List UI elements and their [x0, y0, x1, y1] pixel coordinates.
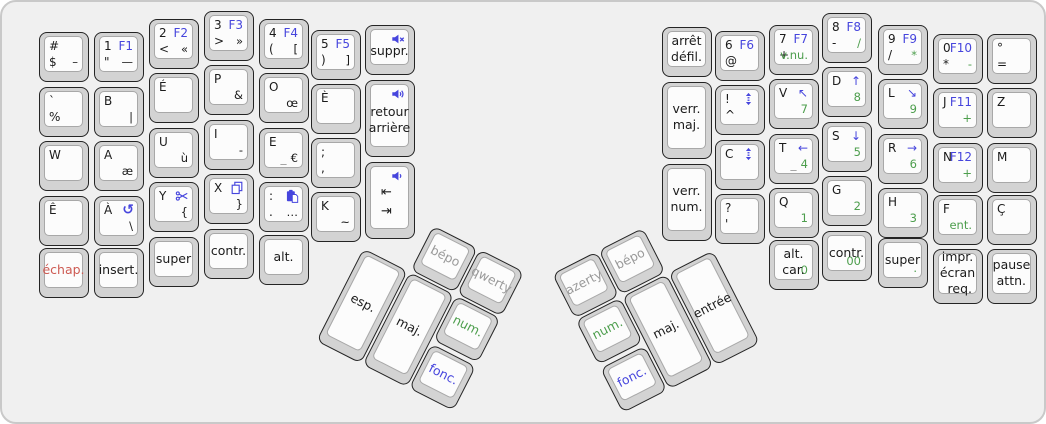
keycap-top: bépo [605, 234, 656, 284]
key-e-grave[interactable]: È [311, 84, 361, 134]
key-label: fonc. [609, 355, 655, 399]
key-legend: 4 [269, 27, 277, 39]
key-legend: ~ [340, 217, 350, 229]
key-print-screen[interactable]: impr.écranreq. [933, 249, 983, 304]
key-label: impr.écranreq. [940, 255, 975, 292]
key-legend: ↖ [798, 87, 808, 99]
key-legend: 5 [854, 147, 861, 159]
key-label: échap. [46, 254, 81, 286]
key-super-right[interactable]: .super [878, 238, 928, 288]
key-i[interactable]: I- [204, 120, 254, 170]
keycap-top: P& [209, 69, 248, 105]
keycap-top: I- [209, 124, 248, 160]
key-colon[interactable]: :.… [259, 182, 309, 232]
key-legend: + [962, 168, 972, 180]
key-legend: * [911, 50, 917, 62]
key-legend: Q [779, 196, 788, 208]
copy-icon [230, 181, 244, 195]
key-legend: J [943, 96, 947, 108]
key-label: bépo [422, 234, 468, 278]
key-legend: Ê [49, 204, 57, 216]
key-legend: 5 [321, 38, 329, 50]
key-legend: 2 [159, 27, 167, 39]
key-legend: ^ [725, 109, 735, 121]
key-legend: I [214, 128, 218, 140]
keycap-top: 7F7+v.nu. [774, 29, 813, 65]
key-e-circumflex[interactable]: Ê [39, 196, 89, 246]
keycap-top: super [154, 241, 193, 277]
key-legend: $ [49, 56, 57, 68]
key-legend: - [968, 59, 972, 71]
keycap-top: G2 [827, 180, 866, 216]
key-legend: F5 [335, 38, 350, 50]
scroll-icon [742, 147, 755, 161]
keycap-top: verr.maj. [667, 86, 706, 149]
key-legend: > [214, 35, 224, 47]
key-legend: S [832, 130, 840, 142]
key-label: alt.car. [776, 246, 811, 278]
key-legend: P [214, 73, 221, 85]
key-c[interactable]: C [715, 140, 765, 190]
keycap-top: V↖7 [774, 83, 813, 119]
key-escape[interactable]: échap. [39, 248, 89, 298]
key-legend: ↑ [851, 75, 861, 87]
keycap-top: K~ [316, 196, 355, 232]
key-legend: D [832, 75, 841, 87]
key-k[interactable]: K~ [311, 192, 361, 242]
key-legend: " [104, 56, 110, 68]
keycap-top: W [44, 145, 83, 181]
key-label: arrêtdéfil. [669, 33, 704, 65]
scissors-icon [175, 189, 189, 203]
key-percent[interactable]: `% [39, 87, 89, 137]
key-legend: L [888, 87, 895, 99]
key-legend: ↘ [907, 87, 917, 99]
keycap-top: !^ [720, 89, 759, 125]
key-legend: T [779, 142, 786, 154]
key-legend: æ [122, 166, 133, 178]
paste-icon [285, 189, 299, 203]
key-j-f11[interactable]: JF11+ [933, 88, 983, 138]
key-super-left[interactable]: super [149, 237, 199, 287]
key-label: contr. [211, 235, 246, 267]
key-legend: ; [321, 146, 325, 158]
key-label: bépo [607, 237, 653, 281]
keycap-top: 4F4([ [264, 23, 303, 59]
key-legend: H [888, 196, 897, 208]
key-legend: ! [725, 93, 730, 105]
scroll-icon [742, 92, 755, 106]
keycap-top: Ç [992, 199, 1031, 235]
keycap-top: .super [883, 242, 922, 278]
key-e[interactable]: E_€ [259, 128, 309, 178]
key-label: fonc. [421, 352, 467, 396]
key-c-cedilla[interactable]: Ç [987, 195, 1037, 245]
keycap-top: Z [992, 92, 1031, 128]
key-label: super [156, 243, 191, 275]
key-legend: * [943, 58, 949, 70]
key-label: suppr. [372, 31, 407, 63]
key-t[interactable]: T←_4 [769, 134, 819, 184]
key-legend: + [962, 113, 972, 125]
keycap-top: ⇤⇥ [370, 166, 409, 229]
key-legend: C [725, 148, 733, 160]
key-9-f9[interactable]: 9F9/* [878, 25, 928, 75]
key-dollar[interactable]: #$– [39, 32, 89, 82]
key-legend: , [321, 162, 325, 174]
keycap-top: fonc. [418, 349, 469, 399]
key-label: num. [585, 307, 631, 351]
key-legend: [ [294, 44, 299, 56]
key-legend: # [49, 40, 59, 52]
key-legend: ← [798, 142, 808, 154]
undo-icon: ↺ [122, 203, 134, 217]
key-v[interactable]: V↖7 [769, 79, 819, 129]
key-legend: } [236, 199, 243, 211]
key-legend: F8 [846, 21, 861, 33]
key-legend: » [236, 36, 243, 48]
key-caps-lock[interactable]: verr.maj. [662, 82, 712, 159]
key-label: alt. [266, 241, 301, 273]
key-a[interactable]: Aæ [94, 141, 144, 191]
key-w[interactable]: W [39, 141, 89, 191]
keycap-top: C [720, 144, 759, 180]
key-x[interactable]: X} [204, 174, 254, 224]
key-b[interactable]: B| [94, 87, 144, 137]
key-legend: & [234, 90, 243, 102]
key-legend: F [943, 203, 950, 215]
keycap-top: 5F5)] [316, 34, 355, 70]
key-legend: ` [49, 95, 55, 107]
key-l[interactable]: L↘9 [878, 79, 928, 129]
key-3-f3[interactable]: 3F3>» [204, 11, 254, 61]
keycap-top: 0F10*- [938, 38, 977, 74]
key-legend: K [321, 200, 329, 212]
keycap-top: Q1 [774, 192, 813, 228]
keycap-top: `% [44, 91, 83, 127]
key-legend: 3 [910, 213, 917, 225]
key-legend: O [269, 81, 278, 93]
key-altgr[interactable]: 0alt.car. [769, 240, 819, 290]
keycap-top: arrêtdéfil. [667, 31, 706, 67]
key-legend: 1 [801, 213, 808, 225]
key-alt[interactable]: alt. [259, 235, 309, 285]
key-legend: È [321, 92, 329, 104]
key-legend: À [104, 204, 112, 216]
key-legend: U [159, 136, 168, 148]
key-y[interactable]: Y{ [149, 182, 199, 232]
key-legend: - [832, 37, 836, 49]
key-num-lock[interactable]: verr.num. [662, 164, 712, 241]
key-7-f7[interactable]: 7F7+v.nu. [769, 25, 819, 75]
key-legend: F2 [173, 27, 188, 39]
key-h[interactable]: H3 [878, 188, 928, 238]
key-legend: F1 [118, 40, 133, 52]
key-label: azerty [561, 260, 607, 304]
key-legend: - [239, 145, 243, 157]
key-legend: F12 [950, 151, 972, 163]
key-legend: ent. [949, 220, 972, 232]
key-0-f10[interactable]: 0F10*- [933, 34, 983, 84]
key-control-left[interactable]: contr. [204, 229, 254, 279]
key-label: verr.num. [669, 170, 704, 229]
key-exclamation[interactable]: !^ [715, 85, 765, 135]
key-label: num. [445, 304, 491, 348]
key-legend: É [159, 81, 167, 93]
key-legend: E [269, 136, 277, 148]
key-1-f1[interactable]: 1F1"— [94, 32, 144, 82]
key-legend: → [907, 142, 917, 154]
key-q[interactable]: Q1 [769, 188, 819, 238]
key-legend: € [291, 153, 298, 165]
keycap-top: H3 [883, 192, 922, 228]
key-label: ⇤⇥ [372, 168, 407, 227]
key-control-right[interactable]: 00contr. [822, 231, 872, 281]
keycap-top: contr. [209, 233, 248, 269]
keycap-top: Y{ [154, 186, 193, 222]
key-legend: v.nu. [780, 50, 808, 62]
key-legend: F7 [793, 33, 808, 45]
key-legend: « [181, 44, 188, 56]
keycap-top: pauseattn. [992, 253, 1031, 294]
keycap-top: verr.num. [667, 168, 706, 231]
key-legend: : [269, 190, 273, 202]
key-legend: – [72, 57, 78, 69]
keycap-top: °= [992, 38, 1031, 74]
key-legend: { [181, 207, 188, 219]
keycap-top: S↓5 [827, 126, 866, 162]
key-legend: 6 [725, 39, 733, 51]
key-legend: X [214, 182, 222, 194]
keycap-top: 3F3>» [209, 15, 248, 51]
key-label: verr.maj. [669, 88, 704, 147]
keycap-top: ;, [316, 142, 355, 178]
key-legend: B [104, 95, 112, 107]
key-legend: Z [997, 96, 1005, 108]
key-legend: M [997, 151, 1007, 163]
keycap-top: :.… [264, 186, 303, 222]
key-semicolon[interactable]: ;, [311, 138, 361, 188]
key-scroll-lock[interactable]: arrêtdéfil. [662, 27, 712, 77]
keycap-top: Uù [154, 132, 193, 168]
key-legend: 2 [854, 201, 861, 213]
key-legend: 9 [888, 33, 896, 45]
key-legend: 4 [801, 159, 808, 171]
key-legend: ] [346, 55, 351, 67]
key-legend: W [49, 149, 61, 161]
key-5-f5[interactable]: 5F5)] [311, 30, 361, 80]
key-8-f8[interactable]: 8F8-/ [822, 13, 872, 63]
keycap-top: 8F8-/ [827, 17, 866, 53]
keycap-top: suppr. [370, 29, 409, 65]
key-pause[interactable]: pauseattn. [987, 249, 1037, 304]
key-legend: ' [725, 218, 728, 230]
key-4-f4[interactable]: 4F4([ [259, 19, 309, 69]
key-legend: _ [791, 158, 797, 170]
key-question[interactable]: ?' [715, 194, 765, 244]
key-legend: @ [725, 55, 737, 67]
key-legend: / [857, 38, 861, 50]
keycap-top: 6F6@ [720, 35, 759, 71]
keycap-top: NF12+ [938, 147, 977, 183]
keycap-top: B| [99, 91, 138, 127]
key-legend: = [997, 58, 1007, 70]
key-legend: ) [321, 54, 326, 66]
key-label: contr. [829, 237, 864, 269]
keycap-top: impr.écranreq. [938, 253, 977, 294]
key-delete[interactable]: suppr. [365, 25, 415, 75]
keycap-top: À↺\ [99, 200, 138, 236]
keycap-top: JF11+ [938, 92, 977, 128]
keycap-top: M [992, 147, 1031, 183]
key-legend: F10 [950, 42, 972, 54]
keycap-top: 1F1"— [99, 36, 138, 72]
key-n-f12[interactable]: NF12+ [933, 143, 983, 193]
key-legend: | [129, 112, 133, 124]
key-legend: R [888, 142, 896, 154]
keycap-top: bépo [420, 231, 471, 281]
key-legend: F3 [228, 19, 243, 31]
key-s[interactable]: S↓5 [822, 122, 872, 172]
keycap-top: échap. [44, 252, 83, 288]
key-2-f2[interactable]: 2F2<« [149, 19, 199, 69]
key-legend: % [49, 111, 60, 123]
key-r[interactable]: R→6 [878, 134, 928, 184]
keycap-top: Fent. [938, 199, 977, 235]
key-legend: 8 [854, 92, 861, 104]
keycap-top: #$– [44, 36, 83, 72]
key-g[interactable]: G2 [822, 176, 872, 226]
key-legend: œ [286, 98, 298, 110]
keycap-top: D↑8 [827, 71, 866, 107]
key-legend: 6 [910, 159, 917, 171]
keycap-top: È [316, 88, 355, 124]
key-legend: F9 [902, 33, 917, 45]
keycap-top: fonc. [606, 352, 657, 402]
keyboard-layout: #$–`%WÊéchap.1F1"—B|AæÀ↺\insert.2F2<«ÉUù… [0, 0, 1046, 424]
key-legend: ? [725, 202, 731, 214]
key-legend: Y [159, 190, 166, 202]
key-label: insert. [101, 254, 136, 286]
keycap-top: ?' [720, 198, 759, 234]
key-legend: — [122, 57, 134, 69]
key-insert[interactable]: insert. [94, 248, 144, 298]
key-label: pauseattn. [994, 255, 1029, 292]
key-u[interactable]: Uù [149, 128, 199, 178]
key-label: retourarrière [372, 86, 407, 145]
keycap-top: T←_4 [774, 138, 813, 174]
key-tab[interactable]: ⇤⇥ [365, 162, 415, 239]
key-legend: 1 [104, 40, 112, 52]
key-label: qwerty [469, 258, 515, 302]
key-legend: G [832, 184, 841, 196]
keycap-top: Aæ [99, 145, 138, 181]
keycap-top: alt. [264, 239, 303, 275]
keycap-top: R→6 [883, 138, 922, 174]
key-legend: . [269, 206, 273, 218]
key-degree[interactable]: °= [987, 34, 1037, 84]
keycap-top: qwerty [466, 255, 517, 305]
keycap-top: num. [582, 304, 633, 354]
key-z[interactable]: Z [987, 88, 1037, 138]
key-p[interactable]: P& [204, 65, 254, 115]
key-legend: ° [997, 42, 1003, 54]
keycap-top: 0alt.car. [774, 244, 813, 280]
key-legend: ( [269, 43, 274, 55]
keycap-top: 00contr. [827, 235, 866, 271]
key-legend: \ [129, 221, 133, 233]
key-backspace[interactable]: retourarrière [365, 80, 415, 157]
key-legend: / [888, 49, 892, 61]
key-d[interactable]: D↑8 [822, 67, 872, 117]
keycap-top: É [154, 77, 193, 113]
keycap-top: Oœ [264, 77, 303, 113]
key-legend: F11 [950, 96, 972, 108]
keycap-top: insert. [99, 252, 138, 288]
keycap-top: 9F9/* [883, 29, 922, 65]
key-f[interactable]: Fent. [933, 195, 983, 245]
key-legend: 8 [832, 21, 840, 33]
key-6-f6[interactable]: 6F6@ [715, 31, 765, 81]
key-label: super [885, 244, 920, 276]
key-legend: ù [181, 153, 188, 165]
keycap-top: azerty [558, 258, 609, 308]
key-legend: 9 [910, 104, 917, 116]
key-a-grave[interactable]: À↺\ [94, 196, 144, 246]
keycap-top: 2F2<« [154, 23, 193, 59]
key-legend: < [159, 43, 169, 55]
keycap-top: L↘9 [883, 83, 922, 119]
key-legend: A [104, 149, 112, 161]
key-legend: F4 [283, 27, 298, 39]
key-legend: Ç [997, 203, 1005, 215]
key-e-acute[interactable]: É [149, 73, 199, 123]
keycap-top: retourarrière [370, 84, 409, 147]
key-legend: 7 [779, 33, 787, 45]
key-legend: … [287, 207, 299, 219]
keycap-top: X} [209, 178, 248, 214]
key-o[interactable]: Oœ [259, 73, 309, 123]
key-m[interactable]: M [987, 143, 1037, 193]
keycap-top: E_€ [264, 132, 303, 168]
key-legend: V [779, 87, 787, 99]
key-legend: 3 [214, 19, 222, 31]
key-legend: F6 [739, 39, 754, 51]
key-legend: ↓ [851, 130, 861, 142]
keycap-top: Ê [44, 200, 83, 236]
key-legend: _ [281, 152, 287, 164]
key-legend: 7 [801, 104, 808, 116]
